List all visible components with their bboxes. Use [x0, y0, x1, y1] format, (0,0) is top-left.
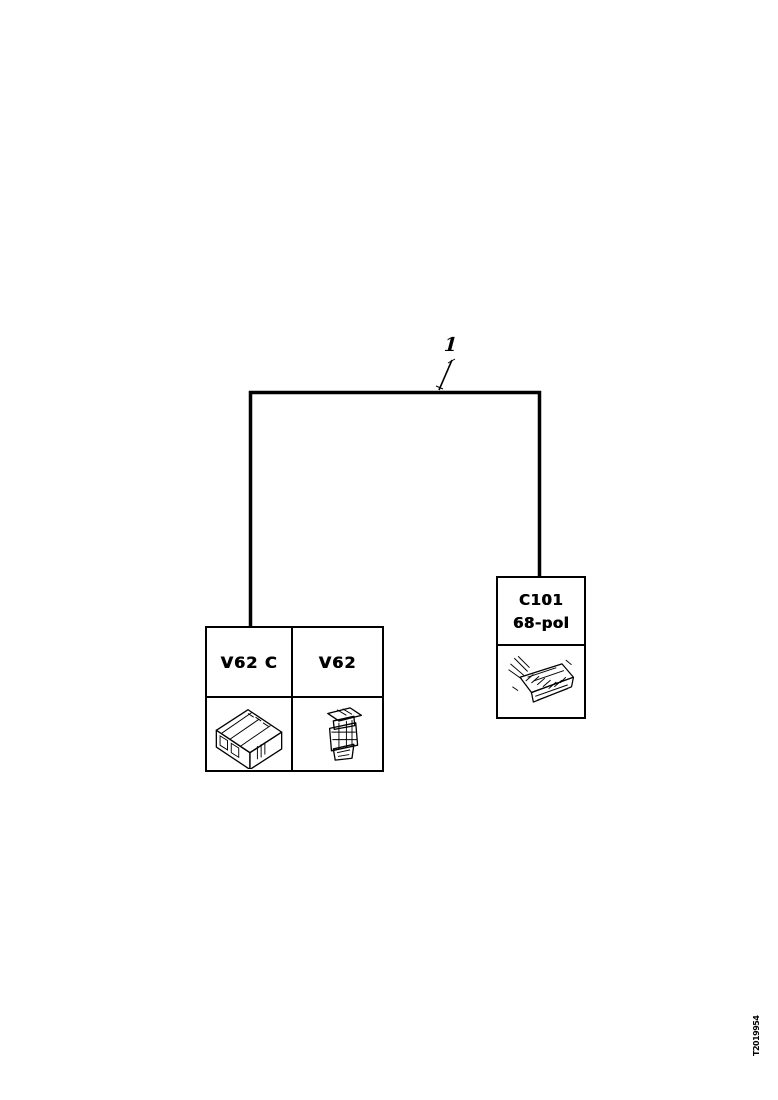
- component-cell-v62c: V62 C: [207, 628, 293, 698]
- wire-layer: [0, 0, 778, 1100]
- callout-number: 1: [443, 336, 458, 355]
- control-module-illustration: [207, 699, 291, 769]
- component-image-cell-left: [207, 698, 293, 770]
- solenoid-valve-illustration: [296, 699, 380, 769]
- connector-pincount-label: 68-pol: [513, 613, 569, 631]
- 68-pin-connector-illustration: [499, 648, 583, 716]
- connector-id-label: C101: [519, 590, 563, 608]
- component-table: V62 C V62: [205, 626, 384, 772]
- component-label-v62: V62: [319, 652, 357, 671]
- diagram-page: 1 V62 C V62: [0, 0, 778, 1100]
- component-label-v62c: V62 C: [221, 652, 278, 671]
- connector-image-cell: [498, 646, 584, 717]
- connector-table: C101 68-pol: [496, 576, 586, 719]
- component-image-cell-right: [293, 698, 382, 770]
- component-cell-v62: V62: [293, 628, 382, 698]
- callout-leader-line: [439, 360, 452, 390]
- connector-text-cell: C101 68-pol: [498, 578, 584, 646]
- drawing-id-text: T2019954: [752, 1016, 761, 1056]
